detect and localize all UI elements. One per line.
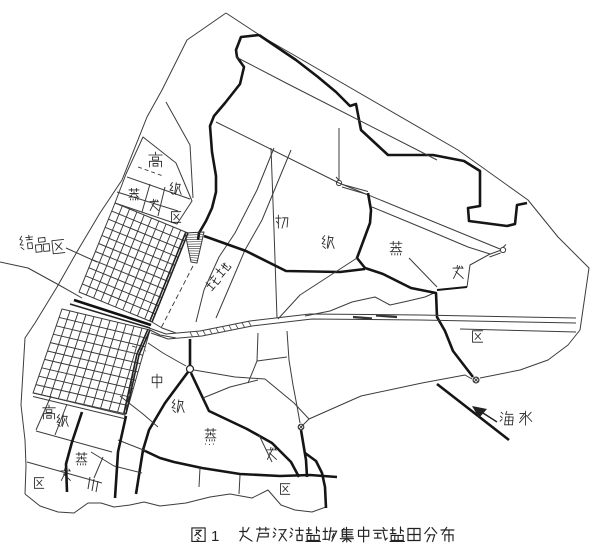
svg-text:1: 1 <box>211 528 219 545</box>
